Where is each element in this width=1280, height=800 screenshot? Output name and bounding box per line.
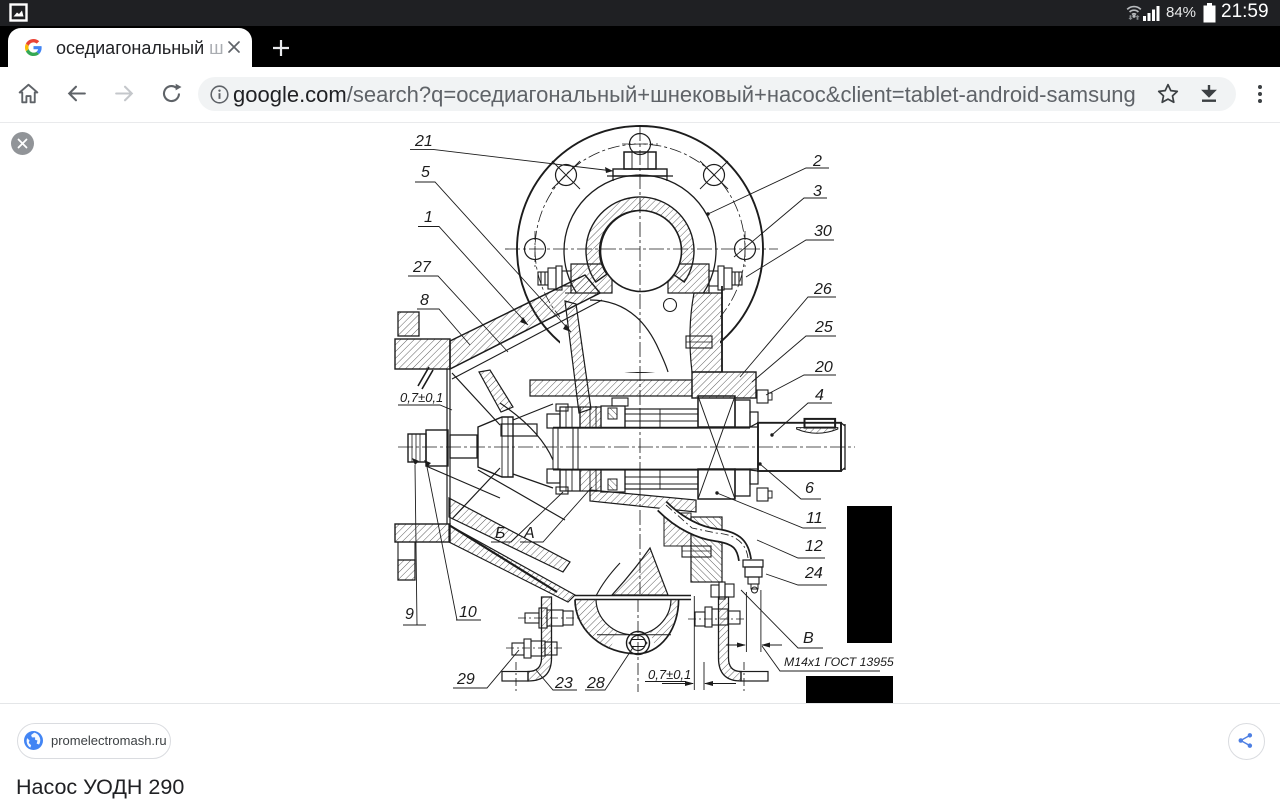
svg-text:1: 1 xyxy=(424,209,433,226)
svg-text:26: 26 xyxy=(813,281,832,298)
svg-text:11: 11 xyxy=(806,510,823,527)
svg-text:20: 20 xyxy=(814,359,833,376)
svg-text:21: 21 xyxy=(414,133,433,150)
svg-text:23: 23 xyxy=(554,675,573,692)
svg-text:В: В xyxy=(803,630,814,647)
svg-text:Б: Б xyxy=(495,525,505,542)
svg-text:28: 28 xyxy=(586,675,605,692)
svg-text:8: 8 xyxy=(420,292,429,309)
svg-text:9: 9 xyxy=(405,606,414,623)
svg-text:5: 5 xyxy=(421,164,430,181)
svg-text:0,7±0,1: 0,7±0,1 xyxy=(400,390,443,405)
svg-text:30: 30 xyxy=(814,223,832,240)
svg-text:4: 4 xyxy=(815,387,824,404)
svg-text:3: 3 xyxy=(813,183,822,200)
svg-text:0,7±0,1: 0,7±0,1 xyxy=(648,667,691,682)
svg-text:А: А xyxy=(523,525,535,542)
svg-text:29: 29 xyxy=(456,671,475,688)
svg-text:М14х1 ГОСТ 13955: М14х1 ГОСТ 13955 xyxy=(784,655,894,669)
svg-text:6: 6 xyxy=(805,480,814,497)
svg-text:12: 12 xyxy=(805,538,823,555)
svg-text:25: 25 xyxy=(814,319,833,336)
svg-text:2: 2 xyxy=(812,153,822,170)
svg-text:27: 27 xyxy=(412,259,432,276)
svg-text:24: 24 xyxy=(804,565,823,582)
svg-text:10: 10 xyxy=(459,604,477,621)
